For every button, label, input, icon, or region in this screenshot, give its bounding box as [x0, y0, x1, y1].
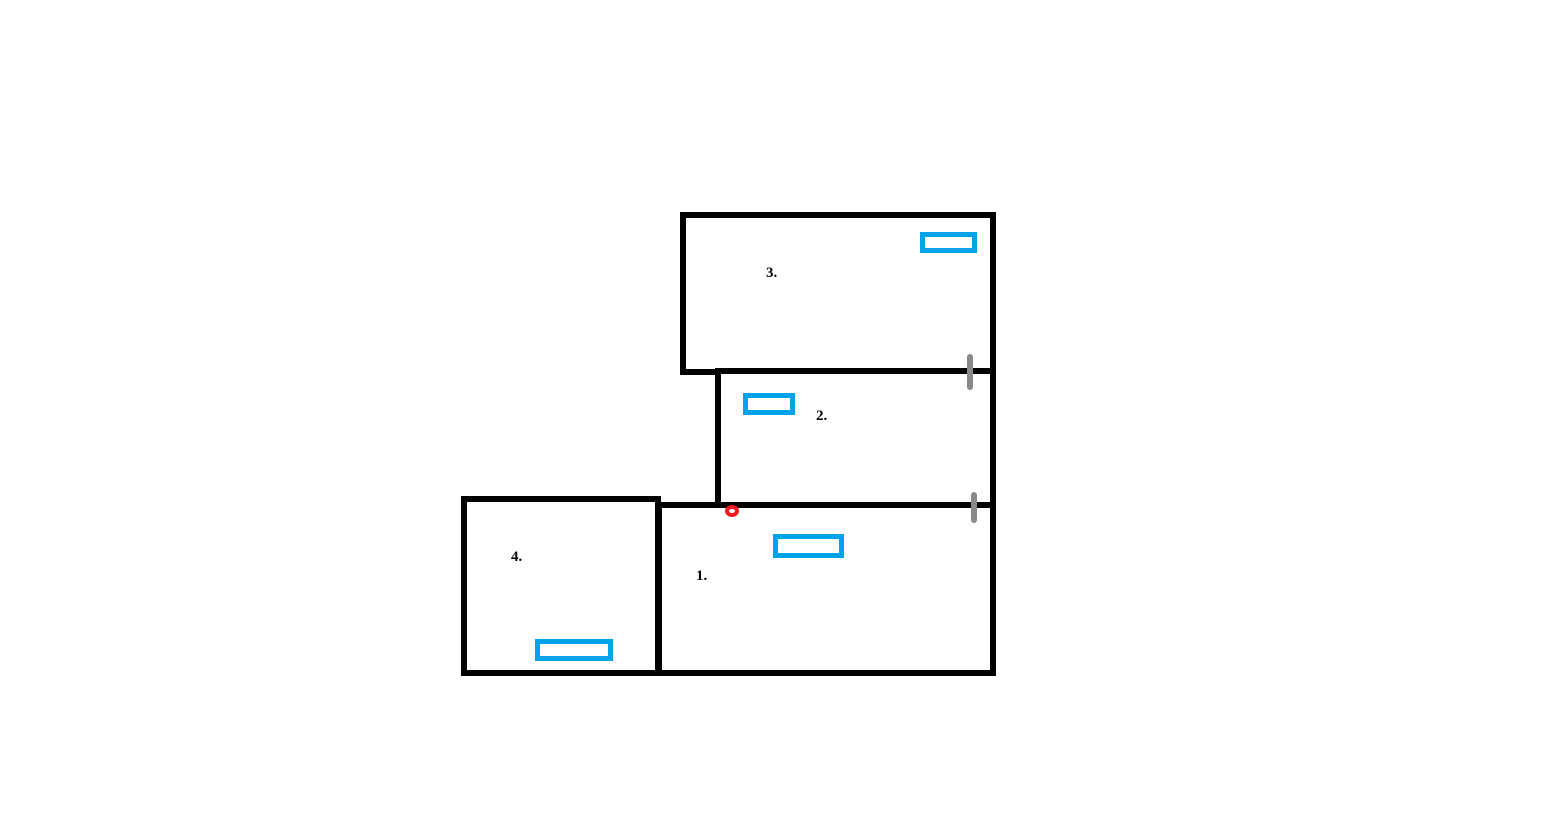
room-3-window-icon	[920, 232, 977, 253]
room-3-label: 3.	[766, 266, 777, 281]
room-2-window-icon	[743, 393, 795, 415]
room-4-window-icon	[535, 639, 613, 661]
door-dash-upper-icon	[967, 354, 973, 390]
room-1-outline	[656, 502, 996, 676]
room-2-outline	[715, 368, 996, 508]
red-point-marker-icon	[725, 505, 739, 517]
door-dash-lower-icon	[971, 492, 977, 523]
room-2-label: 2.	[816, 409, 827, 424]
room-1-window-icon	[773, 534, 844, 558]
room-1-label: 1.	[696, 569, 707, 584]
floor-plan-canvas: 3. 2. 1. 4.	[0, 0, 1549, 839]
room-4-label: 4.	[511, 550, 522, 565]
